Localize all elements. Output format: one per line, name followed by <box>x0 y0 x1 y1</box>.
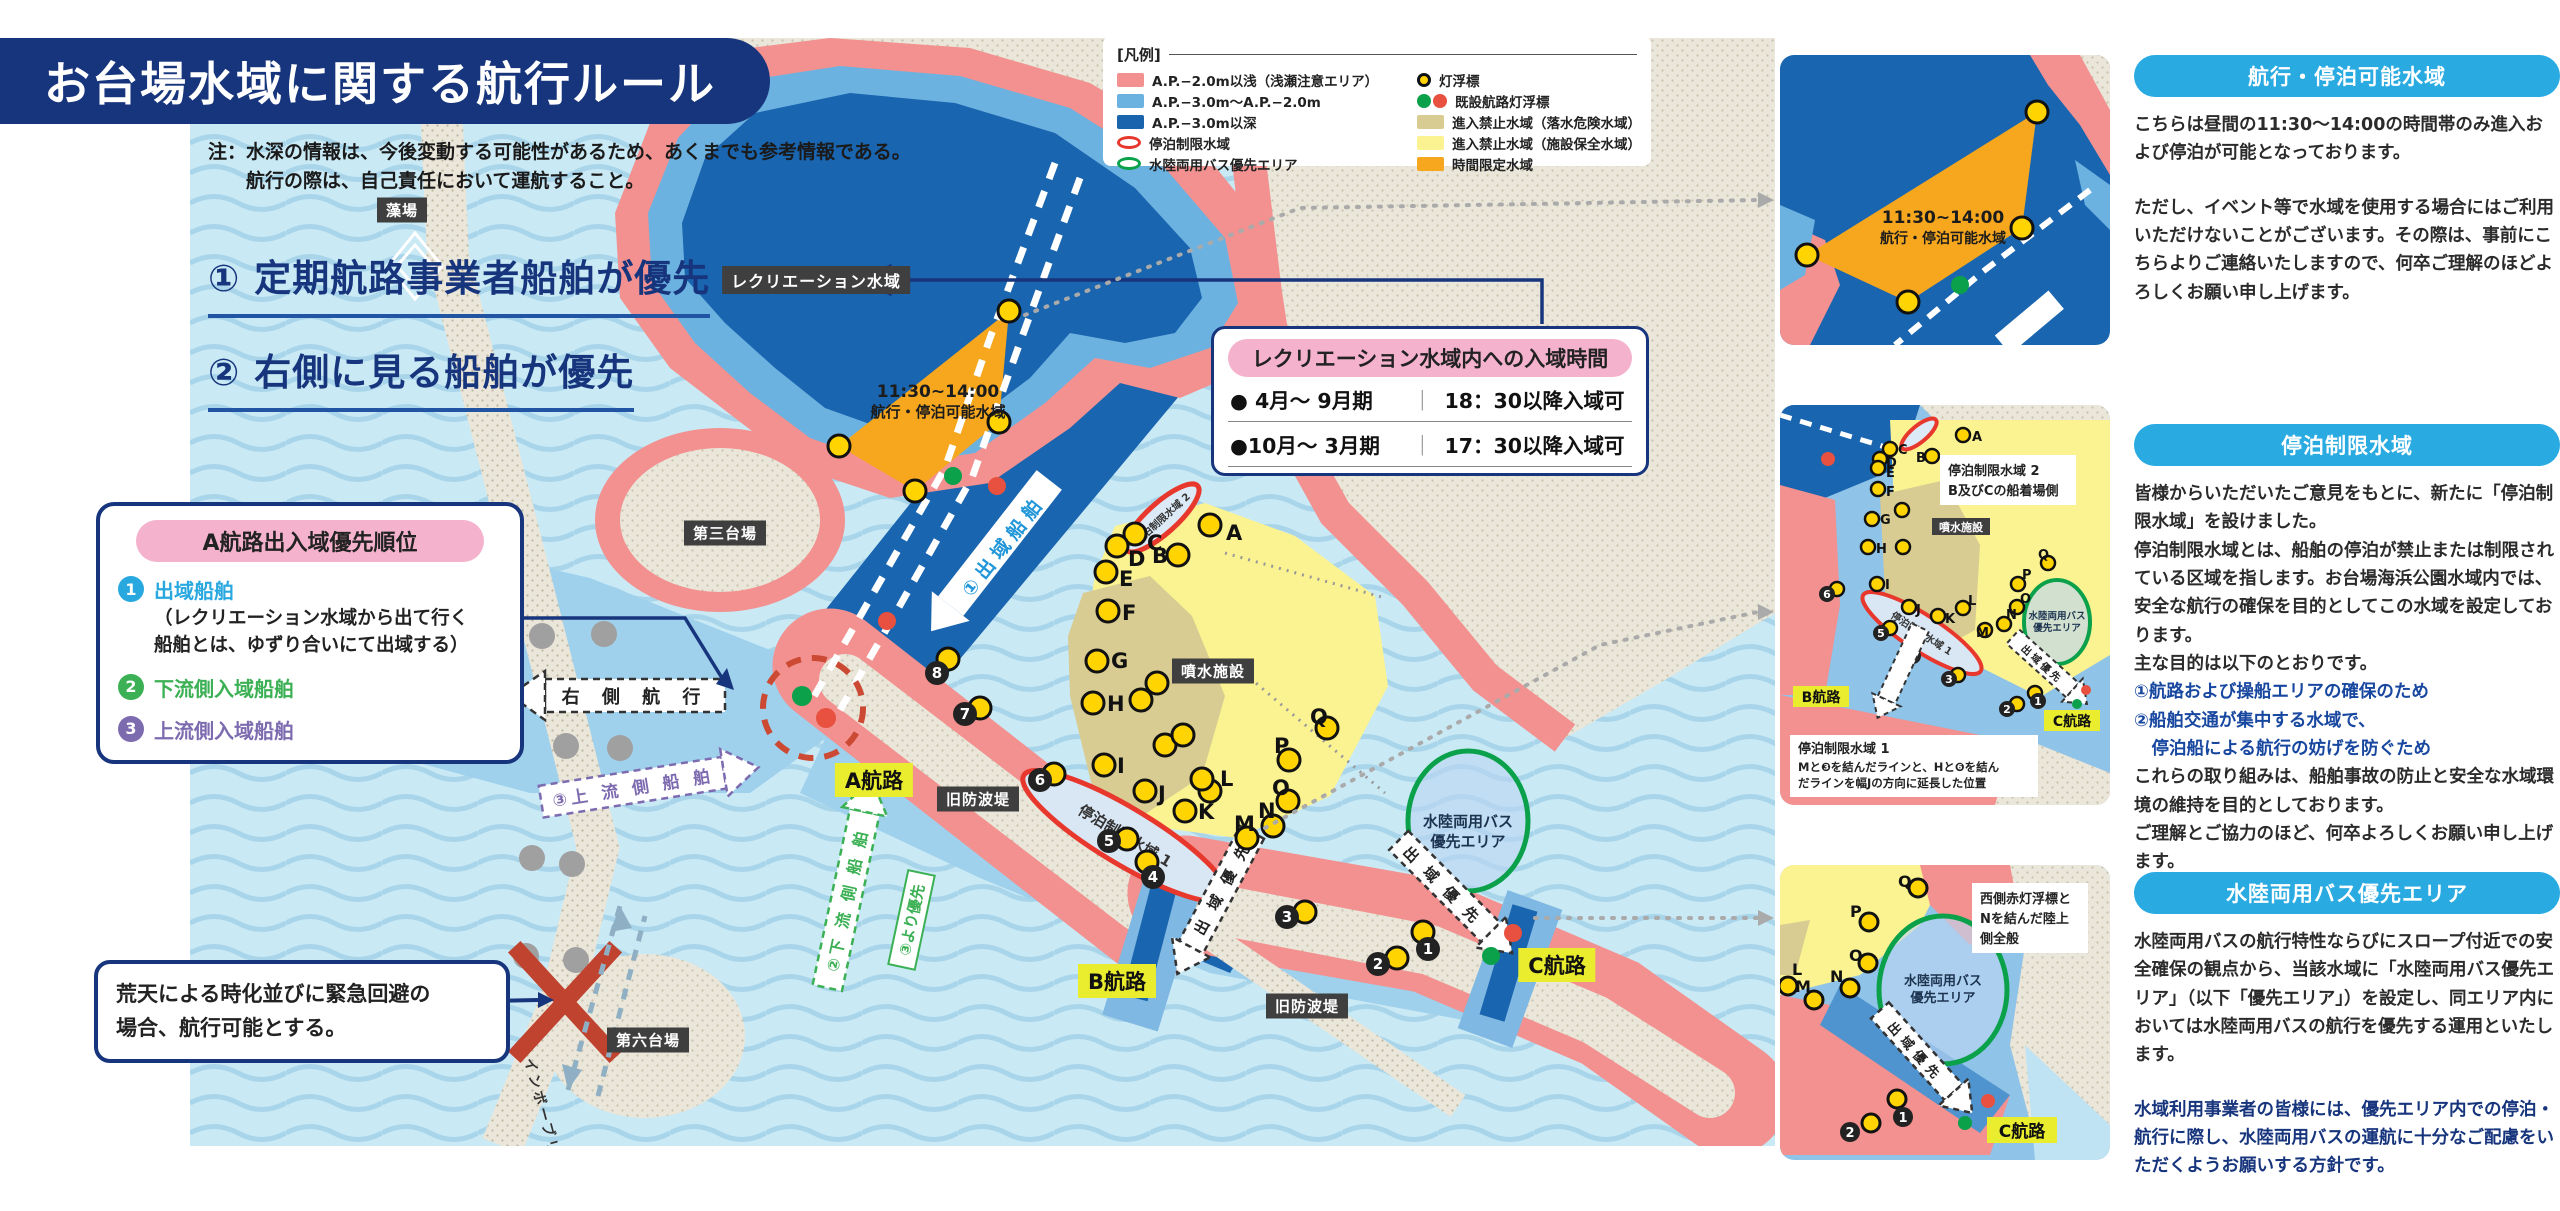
shallow-swatch <box>1117 73 1144 87</box>
route-c-red-buoy <box>1504 924 1522 942</box>
inset3-buoy-2: 2 <box>1845 1126 1854 1141</box>
route-green-buoy-orange-edge <box>944 467 962 485</box>
inset2-buoy-F: F <box>1886 485 1895 500</box>
entry-time: 17：30以降入域可 <box>1445 429 1625 459</box>
inset3-buoy-L: L <box>1792 960 1802 979</box>
route-a-label: A航路 <box>835 763 913 797</box>
inset2-buoy-A: A <box>1972 430 1982 445</box>
legend-title: [凡例] <box>1117 44 1161 65</box>
priority-num-2: 2 <box>118 674 144 700</box>
priority-label-1: 出域船舶 <box>154 575 234 604</box>
priority-num-3: 3 <box>118 716 144 742</box>
priority-item-2: 2 下流側入域船舶 <box>118 673 502 702</box>
light-buoy-swatch <box>1417 73 1431 87</box>
buoy-I: I <box>1117 754 1125 778</box>
time-area-label: 11:30~14:00 航行・停泊可能水域 <box>870 381 1005 423</box>
in3-amph1: 水陸両用バス <box>1904 973 1982 989</box>
entry-period: ●10月〜 3月期 <box>1230 429 1400 459</box>
legend-item: 灯浮標 <box>1417 69 1637 90</box>
priority-note-line1: （レクリエーション水域から出て行く <box>154 606 502 633</box>
inset3-buoy-1: 1 <box>1898 1111 1907 1126</box>
legend-item: 進入禁止水域（落水危険水域） <box>1417 111 1637 132</box>
buoy-A: A <box>1226 521 1243 545</box>
panel1-paragraph2: ただし、イベント等で水域を使用する場合にはご利用いただけないことがございます。そ… <box>2134 194 2560 307</box>
legend-label: 時間限定水域 <box>1452 154 1533 174</box>
inset2-buoy-M: M <box>1976 626 1989 641</box>
panel1-paragraph1: こちらは昼間の11:30〜14:00の時間帯のみ進入および停泊が可能となっており… <box>2134 111 2560 168</box>
inset2-buoy-J: J <box>1915 603 1921 618</box>
inset-amphibious-area: 出域優先 Q P O N M L 1 2 水陸両用バス 優先エリア 西側赤灯浮標… <box>1780 865 2110 1160</box>
legend-label: 灯浮標 <box>1439 70 1480 90</box>
moba-label: 藻場 <box>377 198 427 223</box>
legend-column-1: A.P.−2.0m以浅（浅瀬注意エリア） A.P.−3.0m〜A.P.−2.0m… <box>1117 69 1417 174</box>
entry-time-title: レクリエーション水域内への入域時間 <box>1228 339 1632 377</box>
panel2-goal1: ①航路および操船エリアの確保のため <box>2134 678 2560 706</box>
inset2-buoy-1: 1 <box>2034 695 2042 708</box>
panel2-paragraph2: 停泊制限水域とは、船舶の停泊が禁止または制限されている区域を指します。お台場海浜… <box>2134 537 2560 650</box>
legend-label: 進入禁止水域（落水危険水域） <box>1452 112 1637 132</box>
legend-item: 時間限定水域 <box>1417 153 1637 174</box>
panel2-paragraph3: 主な目的は以下のとおりです。 <box>2134 650 2560 678</box>
inset3-note-line2: Nを結んだ陸上 <box>1980 911 2069 927</box>
legend-column-2: 灯浮標 既設航路灯浮標 進入禁止水域（落水危険水域） 進入禁止水域（施設保全水域… <box>1417 69 1637 174</box>
time-area-line2: 航行・停泊可能水域 <box>870 403 1005 423</box>
inset2-note-bottom-line2: だラインを幅Jの方向に延長した位置 <box>1798 776 1987 790</box>
legend-label: 水陸両用バス優先エリア <box>1149 154 1298 174</box>
panel3-paragraph2: 水域利用事業者の皆様には、優先エリア内での停泊・航行に際し、水陸両用バスの運航に… <box>2134 1096 2560 1181</box>
panel3-title: 水陸両用バス優先エリア <box>2134 872 2560 914</box>
old-breakwater-label-2: 旧防波堤 <box>1266 994 1348 1019</box>
route-b-label: B航路 <box>1078 964 1156 998</box>
legend-label: A.P.−3.0m以深 <box>1152 112 1257 132</box>
legend-item: A.P.−2.0m以浅（浅瀬注意エリア） <box>1117 69 1417 90</box>
inset2-buoy-L: L <box>1968 594 1976 609</box>
inset2-red-buoy <box>1821 452 1835 466</box>
inset3-buoy-O: O <box>1849 946 1863 965</box>
inset2-buoy-3: 3 <box>1945 673 1953 686</box>
in3-amph2: 優先エリア <box>1909 990 1975 1006</box>
inset2-buoy-6: 6 <box>1823 588 1831 601</box>
fountain-label: 噴水施設 <box>1172 659 1254 684</box>
right-side-navigation-label: 右 側 航 行 <box>562 686 709 708</box>
buoy-Q: Q <box>1310 705 1328 729</box>
inset2-buoy-O: O <box>2020 592 2031 607</box>
buoy-E: E <box>1119 567 1133 591</box>
buoy-G: G <box>1111 649 1128 673</box>
priority-item-1-note: （レクリエーション水域から出て行く 船舶とは、ゆずり合いにて出域する） <box>154 606 502 660</box>
entry-divider: ｜ <box>1412 429 1433 459</box>
storm-box: 荒天による時化並びに緊急回避の 場合、航行可能とする。 <box>94 960 510 1063</box>
middepth-swatch <box>1117 94 1144 108</box>
inset3-c-red <box>1981 1094 1995 1108</box>
inset3-buoy-Q: Q <box>1898 872 1912 891</box>
panel1-body: こちらは昼間の11:30〜14:00の時間帯のみ進入および停泊が可能となっており… <box>2134 111 2560 307</box>
amphibious-line1: 水陸両用バス <box>1423 813 1513 833</box>
inset1-label-line1: 11:30~14:00 <box>1882 208 2005 228</box>
buoy-J: J <box>1156 782 1166 806</box>
time-limited-swatch <box>1417 157 1444 171</box>
legend-label: A.P.−2.0m以浅（浅瀬注意エリア） <box>1152 70 1378 90</box>
inset2-note-bottom-title: 停泊制限水域 1 <box>1798 741 1890 757</box>
in2-amph1: 水陸両用バス <box>2028 610 2085 622</box>
rule-1: ① 定期航路事業者船舶が優先 <box>208 248 710 318</box>
entry-divider: ｜ <box>1412 384 1433 414</box>
route-red-buoy-2 <box>878 612 896 630</box>
legend: [凡例] A.P.−2.0m以浅（浅瀬注意エリア） A.P.−3.0m〜A.P.… <box>1103 36 1651 166</box>
legend-item: A.P.−3.0m以深 <box>1117 111 1417 132</box>
legend-item: 既設航路灯浮標 <box>1417 90 1637 111</box>
inset2-fountain-label: 噴水施設 <box>1939 520 1984 534</box>
buoy-H: H <box>1107 692 1125 716</box>
storm-line2: 場合、航行可能とする。 <box>116 1012 488 1046</box>
panel2-title: 停泊制限水域 <box>2134 424 2560 466</box>
p1-pre: こちらは昼間の <box>2134 115 2257 135</box>
route-c-green-buoy <box>1482 947 1500 965</box>
panel1-title: 航行・停泊可能水域 <box>2134 55 2560 97</box>
buoy-N: N <box>1258 799 1276 823</box>
in2-amph2: 優先エリア <box>2032 622 2081 634</box>
buoy-3: 3 <box>1282 908 1292 926</box>
inset2-buoy-5: 5 <box>1877 627 1885 640</box>
panel3-paragraph1: 水陸両用バスの航行特性ならびにスロープ付近での安全確保の観点から、当該水域に「水… <box>2134 928 2560 1070</box>
panel3-body: 水陸両用バスの航行特性ならびにスロープ付近での安全確保の観点から、当該水域に「水… <box>2134 928 2560 1181</box>
buoy-K: K <box>1198 800 1215 824</box>
inset3-route-c-label: C航路 <box>1999 1121 2046 1142</box>
buoy-8: 8 <box>932 664 942 682</box>
inset2-note-top-line1: 停泊制限水域 2 <box>1948 463 2040 479</box>
fall-danger-swatch <box>1417 115 1444 129</box>
entry-time-row: ●10月〜 3月期 ｜ 17：30以降入域可 <box>1228 422 1632 467</box>
inset2-buoy-G: G <box>1880 513 1891 528</box>
legend-label: 既設航路灯浮標 <box>1455 91 1550 111</box>
inset2-route-c-label: C航路 <box>2053 713 2092 730</box>
legend-item: 水陸両用バス優先エリア <box>1117 153 1417 174</box>
buoy-6: 6 <box>1035 771 1045 789</box>
route-buoys-swatch <box>1417 94 1447 108</box>
page-title: お台場水域に関する航行ルール <box>0 38 770 124</box>
priority-num-1: 1 <box>118 576 144 602</box>
buoy-4: 4 <box>1148 868 1158 886</box>
inset2-buoy-C: C <box>1898 443 1908 458</box>
amphibious-area-label: 水陸両用バス 優先エリア <box>1423 813 1513 852</box>
inset2-buoy-E: E <box>1886 466 1895 481</box>
storm-line1: 荒天による時化並びに緊急回避の <box>116 978 488 1012</box>
buoy-M: M <box>1234 812 1255 836</box>
entry-time: 18：30以降入域可 <box>1445 384 1625 414</box>
inset1-green-buoy <box>1951 276 1969 294</box>
entry-time-box: レクリエーション水域内への入域時間 ● 4月〜 9月期 ｜ 18：30以降入域可… <box>1211 326 1649 476</box>
legend-label: 進入禁止水域（施設保全水域） <box>1452 133 1637 153</box>
amphibious-area-swatch <box>1117 157 1141 170</box>
inset3-buoy-N: N <box>1830 967 1843 986</box>
route-a-priority-box: A航路出入域優先順位 1 出域船舶 （レクリエーション水域から出て行く 船舶とは… <box>96 502 524 764</box>
recreation-label: レクリエーション水域 <box>722 266 910 294</box>
priority-item-1: 1 出域船舶 <box>118 575 502 604</box>
legend-rule-line <box>1169 54 1637 55</box>
buoy-O: O <box>1272 776 1290 800</box>
entry-time-row: ● 4月〜 9月期 ｜ 18：30以降入域可 <box>1228 377 1632 422</box>
inset2-c-red <box>2081 685 2091 695</box>
inset3-c-green <box>1958 1116 1972 1130</box>
panel-amphibious-bus: 水陸両用バス優先エリア 水陸両用バスの航行特性ならびにスロープ付近での安全確保の… <box>2134 872 2560 1181</box>
legend-label: 停泊制限水域 <box>1149 133 1230 153</box>
inset2-buoy-K: K <box>1945 612 1956 627</box>
spacer <box>2134 168 2560 194</box>
daiba3-label: 第三台場 <box>684 521 766 546</box>
inset2-buoy-H: H <box>1876 542 1887 557</box>
buoy-L: L <box>1220 767 1233 791</box>
priority-box-title: A航路出入域優先順位 <box>136 520 484 562</box>
priority-label-3: 上流側入域船舶 <box>154 715 294 744</box>
entry-period: ● 4月〜 9月期 <box>1230 384 1400 414</box>
panel-navigable-anchorage: 航行・停泊可能水域 こちらは昼間の11:30〜14:00の時間帯のみ進入および停… <box>2134 55 2560 307</box>
legend-label: A.P.−3.0m〜A.P.−2.0m <box>1152 91 1321 111</box>
legend-item: 停泊制限水域 <box>1117 132 1417 153</box>
daiba6-label: 第六台場 <box>607 1028 689 1053</box>
inset2-note-top-line2: B及びCの船着場側 <box>1948 483 2058 499</box>
panel2-goal3: 停泊船による航行の妨げを防ぐため <box>2134 735 2560 763</box>
panel2-paragraph5: ご理解とご協力のほど、何卒よろしくお願い申し上げます。 <box>2134 820 2560 877</box>
route-c-label: C航路 <box>1518 948 1595 982</box>
buoy-2: 2 <box>1373 955 1383 973</box>
inset2-route-b-label: B航路 <box>1802 689 1842 706</box>
buoy-5: 5 <box>1104 832 1114 850</box>
inset1-label-line2: 航行・停泊可能水域 <box>1880 230 2006 247</box>
inset2-note-bottom-line1: Mと❸を結んだラインと、Hと❻を結ん <box>1798 760 2000 774</box>
inset2-buoy-I: I <box>1885 578 1890 593</box>
disclaimer-line2: 航行の際は、自己責任において運航すること。 <box>208 167 911 196</box>
panel2-paragraph1: 皆様からいただいたご意見をもとに、新たに「停泊制限水域」を設けました。 <box>2134 480 2560 537</box>
buoy-7: 7 <box>960 705 970 723</box>
odaiba-navigation-rules-poster: レインボーブリッジ 停泊制限水域 2 停泊制限水域 1 ①出域船舶 <box>0 0 2560 1211</box>
buoy-C: C <box>1147 531 1162 555</box>
disclaimer-note: 注：水深の情報は、今後変動する可能性があるため、あくまでも参考情報である。 航行… <box>208 138 911 197</box>
page-title-text: お台場水域に関する航行ルール <box>0 48 716 114</box>
spacer <box>2134 1070 2560 1096</box>
inset2-buoy-P: P <box>2022 568 2032 583</box>
buoy-P: P <box>1274 734 1289 758</box>
panel-anchoring-restriction: 停泊制限水域 皆様からいただいたご意見をもとに、新たに「停泊制限水域」を設けまし… <box>2134 424 2560 877</box>
priority-item-3: 3 上流側入域船舶 <box>118 715 502 744</box>
p1-bold: 11:30〜14:00の時間帯のみ <box>2257 115 2491 135</box>
deep-swatch <box>1117 115 1144 129</box>
route-red-buoy-1 <box>988 477 1006 495</box>
anchoring-restriction-swatch <box>1117 136 1141 149</box>
facility-protection-swatch <box>1417 136 1444 150</box>
inset-anchoring-restriction: 停泊制限水域 1 A B C D E F G H I J K L M N O <box>1780 405 2110 805</box>
inset2-buoy-Q: Q <box>2038 548 2049 563</box>
buoy-F: F <box>1122 601 1136 625</box>
inset3-note-line3: 側全般 <box>1979 931 2019 947</box>
panel2-paragraph4: これらの取り組みは、船舶事故の防止と安全な水域環境の維持を目的としております。 <box>2134 763 2560 820</box>
inset3-note-line1: 西側赤灯浮標と <box>1980 891 2071 907</box>
inset-time-limited-area: 11:30~14:00 航行・停泊可能水域 <box>1780 55 2110 345</box>
panel2-goal2: ②船舶交通が集中する水域で、 <box>2134 707 2560 735</box>
inset2-c-green <box>2072 699 2082 709</box>
panel2-body: 皆様からいただいたご意見をもとに、新たに「停泊制限水域」を設けました。 停泊制限… <box>2134 480 2560 877</box>
inset2-buoy-B: B <box>1916 451 1926 466</box>
legend-item: 進入禁止水域（施設保全水域） <box>1417 132 1637 153</box>
inset2-buoy-2: 2 <box>2003 703 2011 716</box>
time-area-line1: 11:30~14:00 <box>870 381 1005 403</box>
inset3-buoy-P: P <box>1850 902 1862 921</box>
route-a-green-buoy <box>792 686 812 706</box>
disclaimer-line1: 注：水深の情報は、今後変動する可能性があるため、あくまでも参考情報である。 <box>208 138 911 167</box>
legend-item: A.P.−3.0m〜A.P.−2.0m <box>1117 90 1417 111</box>
old-breakwater-label-1: 旧防波堤 <box>937 787 1019 812</box>
inset2-buoy-N: N <box>2006 608 2017 623</box>
priority-label-2: 下流側入域船舶 <box>154 673 294 702</box>
amphibious-line2: 優先エリア <box>1423 832 1513 852</box>
rule-2: ② 右側に見る船舶が優先 <box>208 342 634 412</box>
inset3-buoy-M: M <box>1795 977 1811 996</box>
buoy-1: 1 <box>1423 940 1433 958</box>
priority-note-line2: 船舶とは、ゆずり合いにて出域する） <box>154 633 502 660</box>
route-a-red-buoy <box>816 708 836 728</box>
